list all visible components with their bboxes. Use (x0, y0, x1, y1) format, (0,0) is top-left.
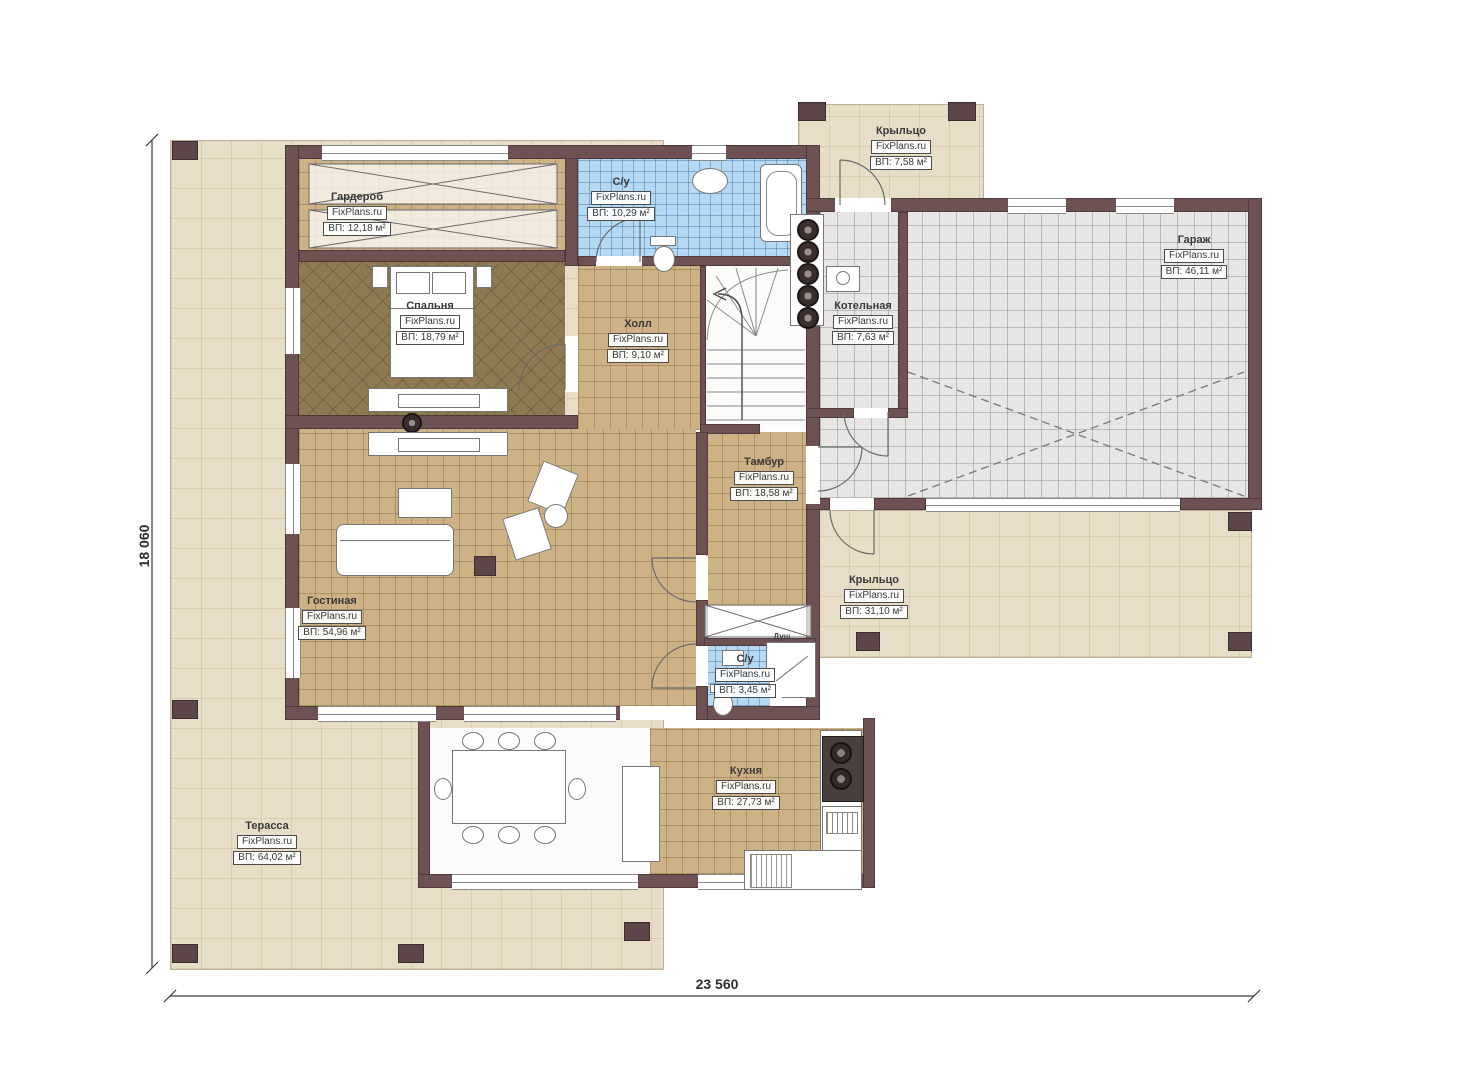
door-gap-entrance (806, 446, 820, 504)
room-name: Крыльцо (876, 125, 926, 138)
room-name: Холл (624, 318, 652, 331)
area-box: ВП: 7,58 м² (870, 156, 932, 170)
boiler-unit (797, 307, 819, 329)
tv-console-inner (398, 438, 480, 452)
boiler-unit (797, 285, 819, 307)
room-name: Кухня (730, 765, 762, 778)
area-box: ВП: 7,63 м² (832, 331, 894, 345)
room-name: Терасса (245, 820, 289, 833)
room-label-shower: Душ (764, 632, 800, 641)
area-box: ВП: 64,02 м² (233, 851, 300, 865)
dining-table (452, 750, 566, 824)
area-box: ВП: 18,79 м² (396, 331, 463, 345)
area-box: ВП: 3,45 м² (714, 684, 776, 698)
window-garage-2 (1116, 198, 1174, 214)
terrace-post (172, 944, 198, 963)
brand-box: FixPlans.ru (302, 610, 362, 624)
area-box: ВП: 27,73 м² (712, 796, 779, 810)
door-gap-boiler (854, 408, 888, 418)
stove-burner (830, 742, 852, 764)
brand-box: FixPlans.ru (716, 780, 776, 794)
room-label-kitchen: Кухня FixPlans.ru ВП: 27,73 м² (705, 765, 787, 810)
room-name: Крыльцо (849, 574, 899, 587)
window-bath-top (692, 145, 726, 161)
door-gap-bedroom (565, 336, 578, 392)
area-box: ВП: 10,29 м² (587, 207, 654, 221)
dining-chair (498, 826, 520, 844)
brand-box: FixPlans.ru (591, 191, 651, 205)
area-box: ВП: 31,10 м² (840, 605, 907, 619)
boiler-unit (797, 263, 819, 285)
window-living-terrace-2 (464, 706, 616, 722)
coffee-table (398, 488, 452, 518)
window-wardrobe-top (322, 145, 508, 161)
wall-bay-right (863, 718, 875, 888)
wall-garage-bottom-3 (1180, 498, 1262, 510)
terrace-post (398, 944, 424, 963)
brand-box: FixPlans.ru (400, 315, 460, 329)
wall-stairs-tambour (700, 424, 760, 434)
garage-door (926, 498, 1180, 512)
door-gap-corridor-living (696, 556, 708, 600)
room-label-bedroom: Спальня FixPlans.ru ВП: 18,79 м² (388, 300, 472, 345)
window-bedroom-left (285, 288, 301, 354)
brand-box: FixPlans.ru (1164, 249, 1224, 263)
porch-post (1228, 512, 1252, 531)
brand-box: FixPlans.ru (327, 206, 387, 220)
room-label-tambour: Тамбур FixPlans.ru ВП: 18,58 м² (722, 456, 806, 501)
dining-chair (534, 732, 556, 750)
terrace-post (172, 141, 198, 160)
door-gap-bath-top (596, 256, 642, 266)
area-box: ВП: 54,96 м² (298, 626, 365, 640)
boiler-unit (797, 219, 819, 241)
wall-living-corridor-1 (696, 432, 708, 555)
dining-chair (462, 826, 484, 844)
room-label-porch-top: Крыльцо FixPlans.ru ВП: 7,58 м² (858, 125, 944, 170)
wall-living-corridor-3 (696, 686, 708, 720)
porch-post (948, 102, 976, 121)
window-bay-1 (452, 874, 638, 890)
wall-bay-left (418, 718, 430, 886)
room-name: Гараж (1178, 234, 1211, 247)
toilet-bowl (653, 246, 675, 272)
room-label-bath-top: С/у FixPlans.ru ВП: 10,29 м² (582, 176, 660, 221)
door-gap-bath-bottom (696, 646, 708, 686)
window-living-left-1 (285, 464, 301, 534)
area-box: ВП: 18,58 м² (730, 487, 797, 501)
nightstand (476, 266, 492, 288)
dimension-height: 18 060 (136, 506, 152, 586)
floor-plan: Гардероб FixPlans.ru ВП: 12,18 м² Спальн… (0, 0, 1474, 1080)
room-label-wardrobe: Гардероб FixPlans.ru ВП: 12,18 м² (310, 191, 404, 236)
room-label-living: Гостиная FixPlans.ru ВП: 54,96 м² (288, 595, 376, 640)
water-heater-dial (836, 271, 850, 285)
room-name: Тамбур (744, 456, 784, 469)
wall-garage-bottom-2 (874, 498, 926, 510)
room-name: Гардероб (331, 191, 383, 204)
brand-box: FixPlans.ru (844, 589, 904, 603)
window-garage-1 (1008, 198, 1066, 214)
brand-box: FixPlans.ru (871, 140, 931, 154)
room-name: Котельная (834, 300, 892, 313)
room-label-boiler: Котельная FixPlans.ru ВП: 7,63 м² (822, 300, 904, 345)
kitchen-island (622, 766, 660, 862)
dining-chair (498, 732, 520, 750)
sofa-back-line (340, 540, 450, 541)
room-name: Спальня (406, 300, 454, 313)
bed-pillow (432, 272, 466, 294)
room-label-hall: Холл FixPlans.ru ВП: 9,10 м² (598, 318, 678, 363)
porch-post (1228, 632, 1252, 651)
brand-box: FixPlans.ru (833, 315, 893, 329)
dining-chair (568, 778, 586, 800)
porch-post (798, 102, 826, 121)
wall-wardrobe-hall (565, 158, 578, 266)
area-box: ВП: 9,10 м² (607, 349, 669, 363)
fireplace-flue (402, 413, 422, 433)
sink-grid (826, 812, 858, 834)
window-living-terrace-1 (318, 706, 436, 722)
dining-chair (434, 778, 452, 800)
tv-console-inner (398, 394, 480, 408)
room-label-terrace: Терасса FixPlans.ru ВП: 64,02 м² (223, 820, 311, 865)
room-label-garage: Гараж FixPlans.ru ВП: 46,11 м² (1150, 234, 1238, 279)
bath-sink (692, 168, 728, 194)
brand-box: FixPlans.ru (715, 668, 775, 682)
terrace-post (172, 700, 198, 719)
wall-garage-right (1248, 198, 1262, 510)
wall-boiler-bottom-2 (888, 408, 908, 418)
opening-living-kitchen (620, 706, 696, 720)
dining-chair (534, 826, 556, 844)
wall-bedroom-living (285, 415, 578, 429)
wall-boiler-bottom-1 (806, 408, 854, 418)
porch-post (856, 632, 880, 651)
room-name: С/у (612, 176, 629, 189)
room-label-bath-bottom: С/у FixPlans.ru ВП: 3,45 м² (708, 653, 782, 698)
room-name: С/у (736, 653, 753, 666)
dimension-width: 23 560 (672, 976, 762, 992)
dishwasher (750, 854, 792, 888)
column (474, 556, 496, 576)
terrace-post (624, 922, 650, 941)
wall-wardrobe-bedroom (299, 250, 565, 262)
area-box: ВП: 46,11 м² (1161, 265, 1228, 279)
door-gap-porch-boiler (835, 198, 891, 212)
wall-hall-stairs (700, 266, 706, 426)
brand-box: FixPlans.ru (608, 333, 668, 347)
room-label-porch-right: Крыльцо FixPlans.ru ВП: 31,10 м² (830, 574, 918, 619)
side-table (544, 504, 568, 528)
toilet-tank (650, 236, 676, 246)
dining-chair (462, 732, 484, 750)
nightstand (372, 266, 388, 288)
door-gap-garage-porch (830, 498, 874, 510)
area-box: ВП: 12,18 м² (323, 222, 390, 236)
stove-burner (830, 768, 852, 790)
room-name: Гостиная (307, 595, 357, 608)
bed-pillow (396, 272, 430, 294)
brand-box: FixPlans.ru (237, 835, 297, 849)
boiler-unit (797, 241, 819, 263)
sofa (336, 524, 454, 576)
brand-box: FixPlans.ru (734, 471, 794, 485)
room-name: Душ (774, 632, 791, 641)
